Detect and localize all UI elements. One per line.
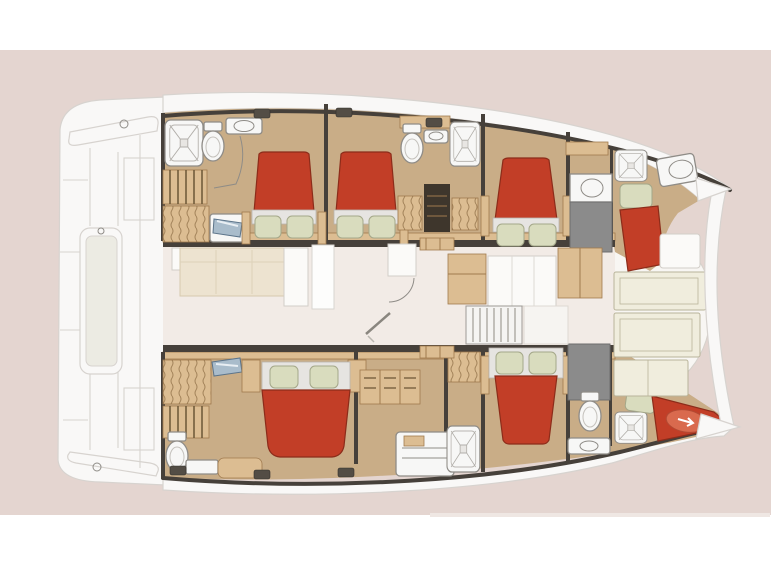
pillow (369, 216, 395, 238)
cockpit-bench (614, 313, 700, 357)
bedside-rail (481, 356, 489, 394)
master-wardrobes (360, 370, 420, 404)
nightstand (242, 360, 260, 392)
toilet (579, 392, 601, 431)
walkway-step (420, 238, 454, 250)
bedside-rail (481, 196, 489, 236)
cockpit-bench (614, 360, 688, 396)
cockpit-locker (660, 234, 700, 268)
deck-hatch (336, 108, 352, 117)
soft-shadow (430, 513, 770, 517)
vanity-desk (396, 432, 454, 476)
pillow (287, 216, 313, 238)
walkway-step (420, 346, 454, 358)
shower-stall (165, 120, 203, 166)
deck-hatch (170, 466, 186, 475)
toilet (202, 122, 224, 161)
washbasin-counter (186, 460, 218, 474)
locker (566, 142, 608, 155)
bed-duvet (336, 152, 396, 212)
saloon-staircase-treads (473, 308, 515, 342)
washbasin-counter (568, 438, 610, 454)
pillow (497, 224, 524, 246)
catamaran-floor-plan (0, 0, 771, 578)
toilet (401, 124, 423, 163)
shower-stall (450, 122, 480, 166)
shower-stall (447, 426, 480, 472)
pillow (496, 352, 523, 374)
stern-deck (58, 97, 165, 485)
wardrobe-slats (452, 198, 478, 230)
technical-locker (570, 202, 612, 252)
pillow (255, 216, 281, 238)
pillow (529, 352, 556, 374)
galley-counter (524, 306, 568, 344)
bed-duvet (262, 390, 350, 457)
shower-stall (615, 150, 647, 181)
wardrobe-slats (163, 206, 209, 242)
bed-duvet (495, 158, 557, 220)
gangway-tread (86, 236, 117, 366)
deck-hatch (338, 468, 354, 477)
pillow (310, 366, 338, 388)
pillow (529, 224, 556, 246)
pillow (620, 184, 652, 208)
double-bed-master (262, 362, 350, 457)
wardrobe-slats (398, 196, 422, 230)
galley-cabinet (448, 254, 486, 304)
bed-duvet (254, 152, 314, 212)
pillow (337, 216, 363, 238)
toilet (166, 432, 188, 471)
bedside-rail (318, 212, 326, 244)
shower-stall (615, 412, 647, 443)
companionway-opening (424, 184, 450, 232)
berth (620, 206, 664, 271)
bed-duvet (495, 376, 557, 444)
deck-hatch (254, 109, 270, 118)
galley-island (488, 256, 556, 306)
washbasin-counter (570, 174, 612, 202)
wardrobe-slats (163, 360, 211, 404)
bedside-rail (242, 212, 250, 244)
pillow (270, 366, 298, 388)
saloon-sofa (180, 248, 284, 296)
deck-hatch (254, 470, 270, 479)
bow-washbasin-unit (656, 153, 698, 187)
deck-hatch (426, 118, 442, 127)
staircase-treads (163, 170, 207, 204)
saloon-table (284, 248, 308, 306)
desk-seat (404, 436, 424, 446)
floor-plan-canvas (0, 0, 771, 578)
saloon-console (312, 245, 334, 309)
